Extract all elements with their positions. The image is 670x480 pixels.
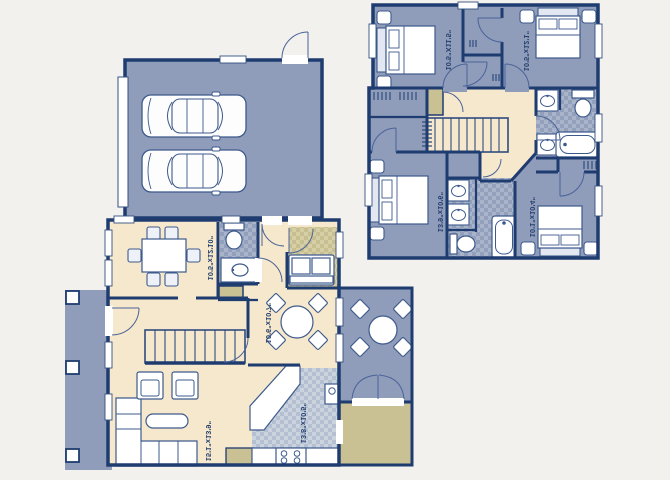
- pantry: [226, 448, 254, 465]
- window: [595, 24, 602, 58]
- bed: [536, 8, 580, 58]
- window: [336, 298, 343, 326]
- window: [458, 2, 478, 9]
- nightstand: [520, 10, 534, 23]
- bathroom-sink: [448, 180, 469, 201]
- breakfast-nook-dimensions: 10'6"x10'7": [264, 303, 273, 343]
- breakfast-table: [281, 306, 313, 338]
- toilet: [572, 90, 594, 98]
- garage-door: [118, 77, 128, 207]
- bedroom-top-left-dimensions: 10'5"X11'5": [444, 30, 453, 71]
- patio-slab: [339, 402, 412, 465]
- staircase: [145, 330, 245, 363]
- second-floor-plan: 10'5"X11'5" 10'5"x12'1" 13'9"x10'6" 10'1…: [365, 2, 602, 258]
- toilet: [450, 234, 457, 254]
- nightstand: [582, 10, 596, 23]
- first-floor-plan: 10'5"x12'10" 10'6"x10'7" 15'1"x13'9" 13'…: [65, 32, 413, 470]
- window: [336, 232, 343, 258]
- window: [220, 56, 246, 63]
- deck-post: [66, 291, 79, 304]
- window: [369, 24, 376, 58]
- linen-closet: [427, 88, 443, 115]
- coffee-table: [146, 414, 188, 428]
- bathroom-sink: [448, 204, 469, 225]
- window: [105, 342, 112, 368]
- upper-stairs: [427, 118, 508, 152]
- nightstand: [377, 11, 391, 24]
- window: [114, 216, 134, 223]
- deck-post: [66, 449, 79, 462]
- nightstand: [584, 242, 598, 255]
- dining-table: [142, 239, 186, 272]
- car: [142, 92, 246, 140]
- window: [222, 216, 240, 223]
- bedroom-bottom-right-dimensions: 10'1"x10'4": [528, 197, 537, 237]
- bathroom-sink: [537, 90, 558, 111]
- window: [595, 186, 602, 216]
- nightstand: [370, 160, 384, 173]
- window: [105, 260, 112, 286]
- entry-bench: [289, 255, 334, 285]
- master-bedroom-dimensions: 13'9"x10'6": [436, 192, 445, 232]
- window: [105, 394, 112, 420]
- bed: [370, 176, 428, 224]
- dining-room-dimensions: 10'5"x12'10": [206, 236, 215, 281]
- window: [336, 334, 343, 362]
- bed: [538, 206, 582, 256]
- nightstand: [521, 242, 535, 255]
- floor-plan-image: 10'5"x12'10" 10'6"x10'7" 15'1"x13'9" 13'…: [0, 0, 670, 480]
- kitchen-dimensions: 13'8"x10'5": [299, 403, 308, 443]
- deck-post: [66, 361, 79, 374]
- window: [595, 114, 602, 142]
- bedroom-top-right-dimensions: 10'5"x12'1": [522, 31, 531, 71]
- deck: [65, 290, 112, 470]
- floor-plan-canvas: 10'5"x12'10" 10'6"x10'7" 15'1"x13'9" 13'…: [0, 0, 670, 480]
- car: [142, 147, 246, 195]
- stove: [276, 448, 306, 465]
- window: [105, 230, 112, 256]
- living-room-dimensions: 15'1"x13'9": [204, 421, 213, 461]
- toilet: [224, 223, 244, 230]
- nightstand: [370, 227, 384, 240]
- garage: [125, 60, 322, 218]
- patio-table: [369, 316, 397, 344]
- window: [365, 174, 372, 206]
- bed: [377, 26, 435, 74]
- bathroom-sink: [537, 134, 558, 155]
